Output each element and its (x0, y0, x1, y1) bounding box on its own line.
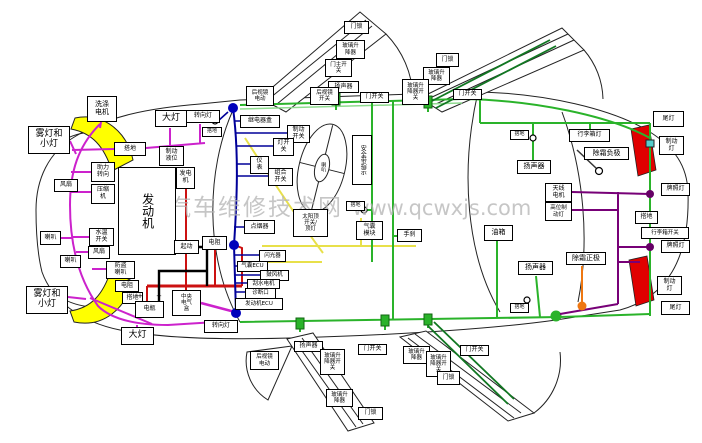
headlight-bottom-label: 大灯 (121, 327, 154, 345)
horn-2-label: 喇叭 (60, 255, 81, 268)
ground-cowl-label: 搭地 (202, 127, 222, 137)
brake-fluid-level-label: 制动 液位 (159, 146, 184, 166)
headlight-top-label: 大灯 (155, 110, 187, 127)
fog-small-light-top-label: 雾灯和 小灯 (28, 126, 70, 154)
generator-label: 发电 机 (176, 167, 195, 189)
trunk-switch-label: 行李箱开关 (641, 227, 689, 239)
window-switch-top-rear-label: 玻璃升 降器开 关 (402, 79, 429, 105)
license-light-1-label: 牌照灯 (661, 183, 690, 196)
resistor-1-label: 电阻 (115, 280, 139, 292)
ground-rear-right-label: 搭地 (635, 211, 658, 224)
fan-1-label: 风扇 (54, 179, 78, 192)
door-lock-top-rear-label: 门锁 (436, 53, 459, 67)
horn-pad-label: 喇叭 (317, 154, 328, 180)
ground-rear-floor-label: 搭地 (510, 303, 529, 313)
door-switch-bottom-1-label: 门开关 (358, 344, 387, 355)
component-labels: 洗涤 电机雾灯和 小灯搭地助力 转向压缩 机风扇大灯转向灯搭地制动 液位发电 机… (0, 0, 702, 443)
defroster-positive-label: 除霜正极 (566, 252, 606, 265)
high-brake-light-label: 高位制 动灯 (545, 202, 572, 221)
trunk-light-label: 行李箱灯 (569, 129, 610, 142)
combination-switch-label: 组合 开关 (268, 168, 293, 186)
defroster-negative-label: 除霜负极 (584, 147, 629, 160)
instrument-cluster-label: 仪 表 (250, 156, 269, 174)
door-lock-bottom-rear-label: 门锁 (437, 371, 460, 385)
coolant-temp-switch-label: 水温 开关 (89, 228, 114, 246)
fan-2-label: 风扇 (88, 246, 110, 259)
brake-light-top-label: 制动 灯 (659, 136, 684, 155)
central-electrical-box-label: 中央 电气 盒 (172, 290, 201, 316)
battery-minus-label: − (155, 292, 163, 301)
relay-box-label: 继电器盒 (240, 115, 280, 128)
anti-theft-horn-label: 防盗 喇叭 (106, 261, 135, 279)
car-wiring-diagram: 汽车维修技术网 www.qcwxjs.com 洗涤 电机雾灯和 小灯搭地助力 转… (0, 0, 702, 443)
fuel-tank-label: 油箱 (484, 225, 513, 241)
handbrake-label: 手刹 (397, 229, 422, 242)
ground-rear-deck-label: 搭地 (510, 130, 529, 140)
horn-1-label: 喇叭 (40, 231, 61, 245)
door-lock-top-front-label: 门锁 (344, 21, 369, 34)
window-lifter-top-front-label: 玻璃升 降器 (336, 40, 365, 59)
engine-label: 发动机 (118, 167, 176, 255)
ground-floor-label: 搭地 (346, 201, 365, 211)
engine-ecu-label: 发动机ECU (235, 298, 283, 310)
battery-label: 电瓶 (135, 301, 164, 318)
door-switch-top-2-label: 门开关 (453, 89, 482, 100)
tail-light-bottom-label: 尾灯 (661, 301, 690, 315)
airbag-module-label: 气囊 模块 (356, 221, 383, 240)
light-switch-label: 灯开 关 (273, 138, 294, 156)
cigarette-lighter-label: 点烟器 (244, 220, 275, 234)
door-lock-bottom-front-label: 门锁 (358, 407, 383, 420)
ground-front-label: 搭地 (114, 142, 146, 156)
turn-light-top-label: 转向灯 (186, 110, 220, 123)
tail-light-top-label: 尾灯 (653, 111, 684, 127)
window-lifter-bottom-front-label: 玻璃升 降器 (326, 389, 353, 407)
door-switch-bottom-2-label: 门开关 (460, 345, 489, 356)
license-light-2-label: 牌照灯 (661, 240, 690, 253)
speaker-rear-left-label: 扬声器 (517, 160, 551, 174)
ac-compressor-label: 压缩 机 (91, 184, 115, 204)
starter-label: 起动 (174, 240, 199, 254)
mirror-switch-label: 后视镜 开关 (310, 87, 339, 105)
washer-motor-label: 洗涤 电机 (87, 96, 117, 122)
speaker-rear-bottom-label: 扬声器 (518, 261, 553, 275)
door-master-switch-label: 门主开 关 (325, 59, 352, 77)
mirror-motor-top-label: 后视镜 电动 (246, 86, 274, 106)
fog-small-light-bottom-label: 雾灯和 小灯 (26, 286, 68, 314)
antenna-motor-label: 天线 电机 (545, 183, 572, 202)
battery-plus-label: + (136, 292, 144, 301)
brake-light-bottom-label: 制动 灯 (657, 276, 682, 295)
seat-belt-indicator-label: 安全带指示 (352, 135, 372, 185)
window-switch-bottom-front-label: 玻璃升 降器开 关 (320, 349, 345, 375)
power-steering-label: 助力 转向 (91, 162, 115, 182)
sunroof-switch-label: 太阳顶 开关/ 顶灯 (293, 209, 328, 237)
mirror-motor-bottom-label: 后视镜 电动 (250, 351, 279, 370)
resistor-2-label: 电阻 (202, 236, 227, 250)
door-switch-top-1-label: 门开关 (360, 92, 389, 103)
speaker-bottom-front-label: 扬声器 (294, 341, 323, 352)
turn-light-bottom-label: 转向灯 (204, 320, 238, 333)
